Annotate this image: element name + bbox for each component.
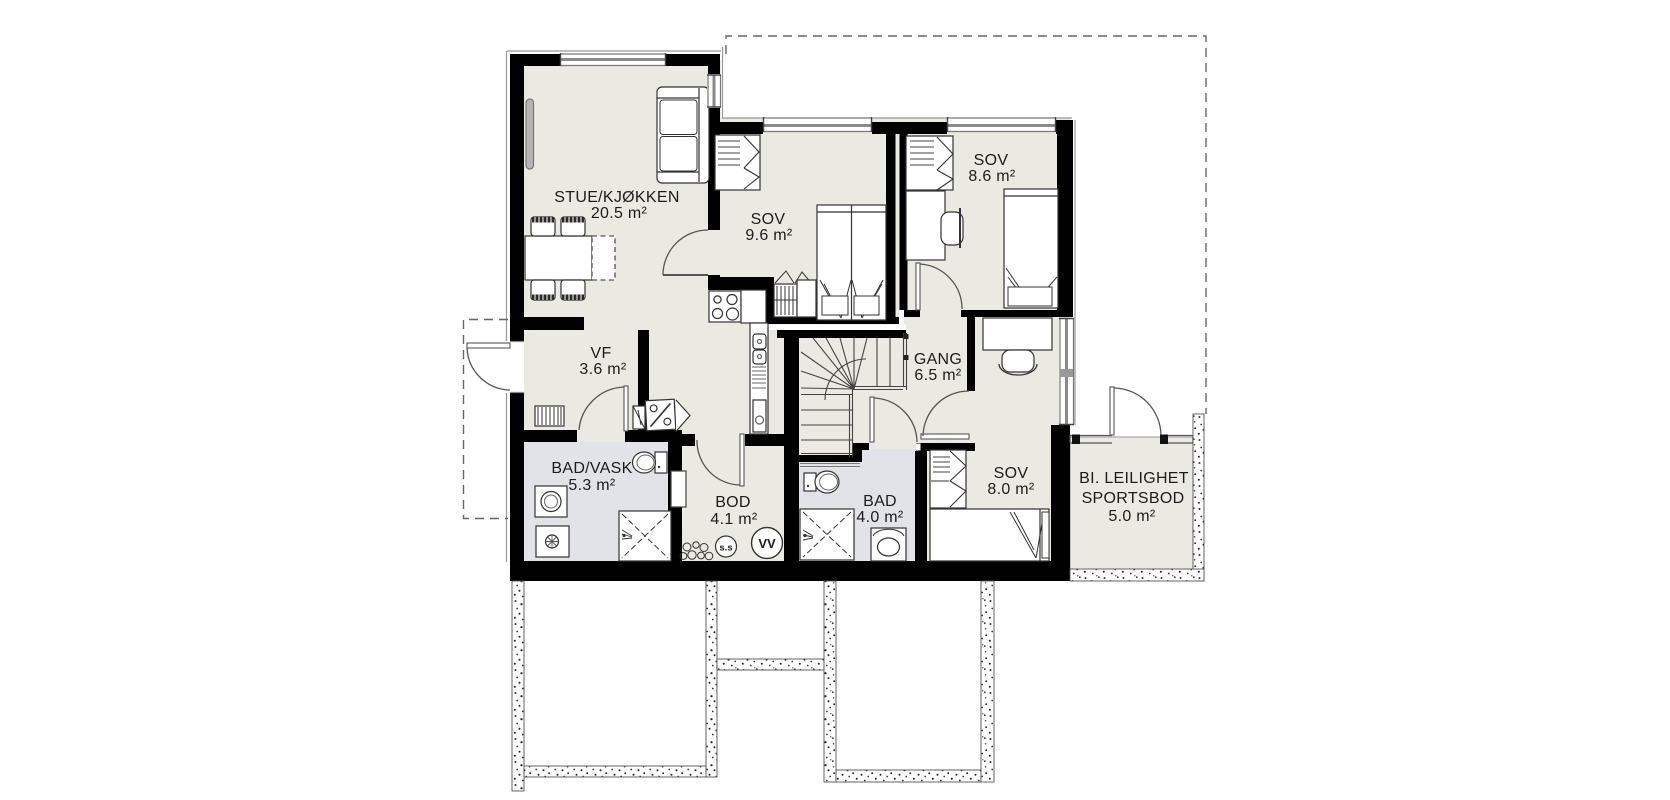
svg-text:VV: VV (758, 536, 776, 551)
svg-text:BAD/VASK: BAD/VASK (551, 460, 632, 477)
svg-text:GANG: GANG (914, 351, 962, 368)
svg-text:9.6 m²: 9.6 m² (745, 227, 793, 244)
svg-text:SOV: SOV (994, 465, 1029, 482)
svg-text:STUE/KJØKKEN: STUE/KJØKKEN (554, 189, 679, 206)
svg-text:VF: VF (590, 345, 611, 362)
svg-text:BOD: BOD (715, 494, 751, 511)
svg-text:3.6 m²: 3.6 m² (579, 361, 627, 378)
svg-text:BAD: BAD (863, 493, 897, 510)
svg-text:8.0 m²: 8.0 m² (987, 481, 1035, 498)
svg-text:SOV: SOV (751, 211, 786, 228)
svg-text:6.5 m²: 6.5 m² (914, 367, 962, 384)
svg-text:8.6 m²: 8.6 m² (968, 168, 1016, 185)
svg-text:4.0 m²: 4.0 m² (856, 509, 904, 526)
svg-text:5.3 m²: 5.3 m² (568, 477, 616, 494)
svg-text:20.5 m²: 20.5 m² (591, 205, 648, 222)
svg-text:SPORTSBOD: SPORTSBOD (1082, 490, 1185, 507)
svg-text:SOV: SOV (974, 152, 1009, 169)
svg-text:BI. LEILIGHET: BI. LEILIGHET (1079, 470, 1189, 487)
svg-text:5.0 m²: 5.0 m² (1108, 508, 1156, 525)
svg-text:s.s: s.s (719, 543, 732, 554)
svg-text:4.1 m²: 4.1 m² (710, 511, 758, 528)
